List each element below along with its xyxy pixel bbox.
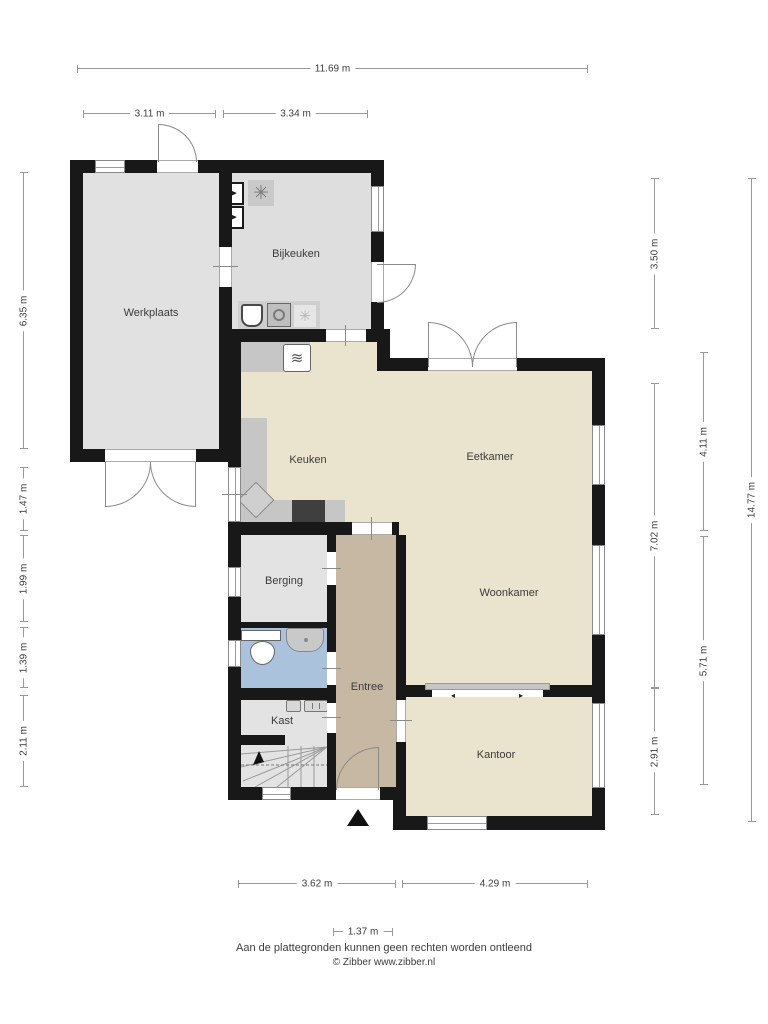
dimension-label: 4.11 m xyxy=(699,422,710,462)
door-leaf xyxy=(377,264,416,265)
slide-right-arrow-icon: ▸ xyxy=(516,691,526,699)
wall xyxy=(393,816,605,830)
wall xyxy=(228,622,336,628)
footer-disclaimer: Aan de plattegronden kunnen geen rechten… xyxy=(0,942,768,954)
slide-left-arrow-icon: ◂ xyxy=(448,691,458,699)
toilet-cistern xyxy=(241,630,281,641)
door-leaf xyxy=(105,462,106,507)
dimension-bijkeuken-width: 3.34 m xyxy=(223,113,368,114)
window xyxy=(262,787,291,800)
room-label-berging: Berging xyxy=(265,575,303,587)
meter-mark xyxy=(312,703,313,709)
door-opening xyxy=(219,247,232,287)
dimension-eetkamer-depth: 4.11 m xyxy=(703,352,704,531)
room-label-kast: Kast xyxy=(271,715,293,727)
dimension-kast-depth: 2.11 m xyxy=(23,695,24,787)
dimension-middle-right-depth: 7.02 m xyxy=(654,383,655,688)
opening-tick xyxy=(322,668,341,669)
opening-tick xyxy=(213,266,238,267)
dimension-entree-width: 1.37 m xyxy=(333,931,393,932)
fan-icon: ✳ xyxy=(294,305,316,327)
dimension-kantoor-width: 4.29 m xyxy=(402,883,588,884)
dimension-label: 2.11 m xyxy=(19,721,30,761)
window xyxy=(592,545,605,635)
door-leaf xyxy=(516,322,517,367)
window xyxy=(592,425,605,485)
meter-mark xyxy=(319,703,320,709)
dimension-label: 4.29 m xyxy=(475,879,516,890)
dimension-label: 3.11 m xyxy=(130,109,170,120)
dimension-label: 1.99 m xyxy=(19,558,30,599)
dimension-label: 14.77 m xyxy=(747,477,758,523)
door-arc xyxy=(158,124,197,162)
dimension-bottom-left-width: 3.62 m xyxy=(238,883,396,884)
dimension-label: 5.71 m xyxy=(699,640,710,681)
wall xyxy=(228,735,285,745)
door-opening xyxy=(105,449,196,462)
dimension-label: 11.69 m xyxy=(310,64,355,75)
room-eetkamer-woonkamer-floor xyxy=(377,371,592,685)
footer-copyright: © Zibber www.zibber.nl xyxy=(0,957,768,968)
electricity-meter-icon xyxy=(304,700,328,712)
opening-tick xyxy=(322,717,341,718)
room-label-kantoor: Kantoor xyxy=(477,749,516,761)
door-arc xyxy=(428,322,473,367)
room-label-woonkamer: Woonkamer xyxy=(479,587,538,599)
room-label-werkplaats: Werkplaats xyxy=(124,307,179,319)
dimension-keuken-left: 1.47 m xyxy=(23,467,24,531)
washer-drum-circle xyxy=(273,309,285,321)
entrance-marker xyxy=(347,809,369,826)
opening-tick xyxy=(371,517,372,540)
door-arc xyxy=(150,462,196,507)
dimension-werkplaats-width: 3.11 m xyxy=(83,113,216,114)
laundry-sink-icon xyxy=(241,304,263,327)
dimension-label: 3.50 m xyxy=(650,233,661,274)
window xyxy=(228,640,241,667)
window xyxy=(95,160,125,173)
washbasin-drain xyxy=(304,638,308,642)
room-label-eetkamer: Eetkamer xyxy=(466,451,513,463)
dimension-bijkeuken-depth: 3.50 m xyxy=(654,178,655,329)
door-opening xyxy=(326,329,366,342)
kitchen-island-dark xyxy=(292,500,325,522)
room-label-entree: Entree xyxy=(351,681,383,693)
door-arc xyxy=(472,322,517,367)
dimension-label: 6.35 m xyxy=(19,290,30,331)
dimension-label: 2.91 m xyxy=(650,731,661,772)
opening-tick xyxy=(222,494,247,495)
window xyxy=(427,816,487,830)
window xyxy=(228,567,241,597)
floorplan-page: ✳ ➤ ➤ ✳ ≋ xyxy=(0,0,768,1024)
opening-tick xyxy=(345,325,346,346)
opening-tick xyxy=(322,568,341,569)
door-arc xyxy=(105,462,151,507)
water-meter-icon xyxy=(286,700,301,712)
dimension-werkplaats-depth: 6.35 m xyxy=(23,172,24,449)
dimension-label: 1.47 m xyxy=(19,479,30,520)
dimension-label: 3.62 m xyxy=(297,879,338,890)
dimension-total-width: 11.69 m xyxy=(77,68,588,69)
dimension-total-depth: 14.77 m xyxy=(751,178,752,822)
dimension-label: 3.34 m xyxy=(275,109,316,120)
door-leaf xyxy=(428,322,429,367)
dimension-berging-depth: 1.99 m xyxy=(23,535,24,622)
window xyxy=(371,186,384,232)
stairs xyxy=(241,745,327,787)
dimension-toilet-depth: 1.39 m xyxy=(23,627,24,688)
dimension-label: 1.39 m xyxy=(19,637,30,678)
wall xyxy=(396,535,406,787)
window xyxy=(592,703,605,788)
dimension-woonkamer-depth: 5.71 m xyxy=(703,536,704,785)
dimension-kantoor-depth: 2.91 m xyxy=(654,688,655,815)
wall xyxy=(543,685,605,697)
door-opening xyxy=(396,700,406,742)
mechanical-ventilation-icon: ✳ xyxy=(248,180,274,206)
stove-icon: ≋ xyxy=(283,344,311,372)
door-arc xyxy=(377,264,416,303)
wall xyxy=(228,688,336,700)
opening-tick xyxy=(390,720,412,721)
door-opening xyxy=(327,703,336,733)
door-leaf xyxy=(195,462,196,507)
dimension-label: 1.37 m xyxy=(343,927,384,938)
wall xyxy=(70,160,83,462)
washbasin-icon xyxy=(286,628,324,652)
washer-drum-icon xyxy=(267,303,291,327)
sliding-door-panel xyxy=(425,683,550,690)
room-label-bijkeuken: Bijkeuken xyxy=(272,248,320,260)
room-label-keuken: Keuken xyxy=(289,454,326,466)
door-opening xyxy=(352,522,392,535)
dimension-label: 7.02 m xyxy=(650,515,661,556)
door-leaf xyxy=(158,124,159,162)
door-leaf xyxy=(378,747,379,790)
